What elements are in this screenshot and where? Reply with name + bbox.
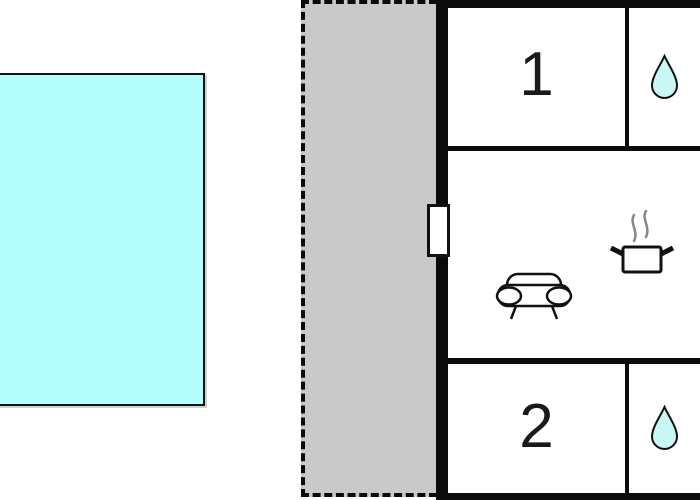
terrace: [301, 0, 437, 497]
living-room: [448, 151, 700, 358]
sofa-icon: [494, 272, 574, 320]
room-2: 2: [448, 364, 625, 493]
bathroom-2: [629, 364, 700, 493]
water-drop-shape: [652, 56, 677, 98]
steam-icon: [633, 215, 636, 241]
water-drop-icon: [649, 405, 680, 452]
water-drop-icon: [649, 54, 680, 101]
window: [427, 204, 450, 257]
steam-icon: [645, 211, 648, 237]
room-1-label: 1: [519, 44, 553, 106]
exterior-wall-top: [436, 0, 700, 8]
bathroom-1: [629, 8, 700, 146]
cooking-pot-icon: [606, 205, 678, 277]
floor-plan: 1 2: [0, 0, 700, 500]
swimming-pool: [0, 73, 205, 406]
water-drop-shape: [652, 407, 677, 449]
room-1: 1: [448, 8, 625, 146]
exterior-wall-bottom: [436, 493, 700, 500]
room-2-label: 2: [519, 396, 553, 458]
